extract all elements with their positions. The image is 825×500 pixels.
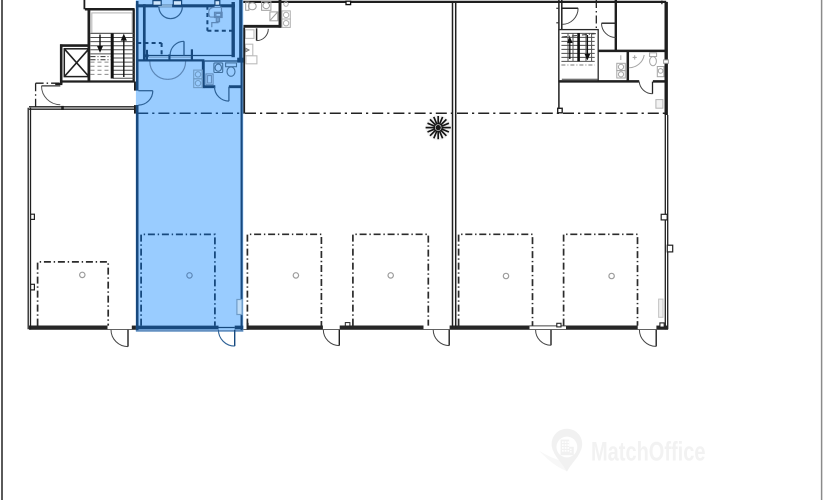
svg-text:MatchOffice: MatchOffice (591, 436, 706, 466)
